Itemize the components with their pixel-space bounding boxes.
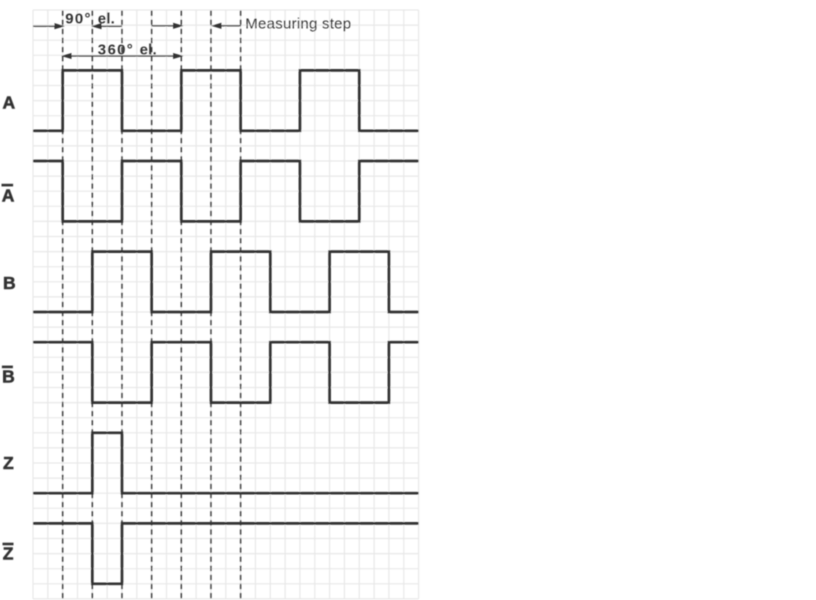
svg-text:B: B: [2, 367, 15, 387]
svg-text:Z: Z: [3, 453, 14, 473]
svg-text:Measuring step: Measuring step: [245, 16, 351, 33]
svg-text:90°: 90°: [65, 11, 92, 28]
svg-text:el.: el.: [98, 11, 115, 28]
svg-text:el.: el.: [140, 41, 157, 58]
svg-text:A: A: [2, 186, 15, 206]
svg-text:Z: Z: [3, 544, 14, 564]
svg-text:360°: 360°: [98, 41, 134, 58]
svg-text:B: B: [3, 273, 16, 293]
svg-text:A: A: [3, 93, 16, 113]
